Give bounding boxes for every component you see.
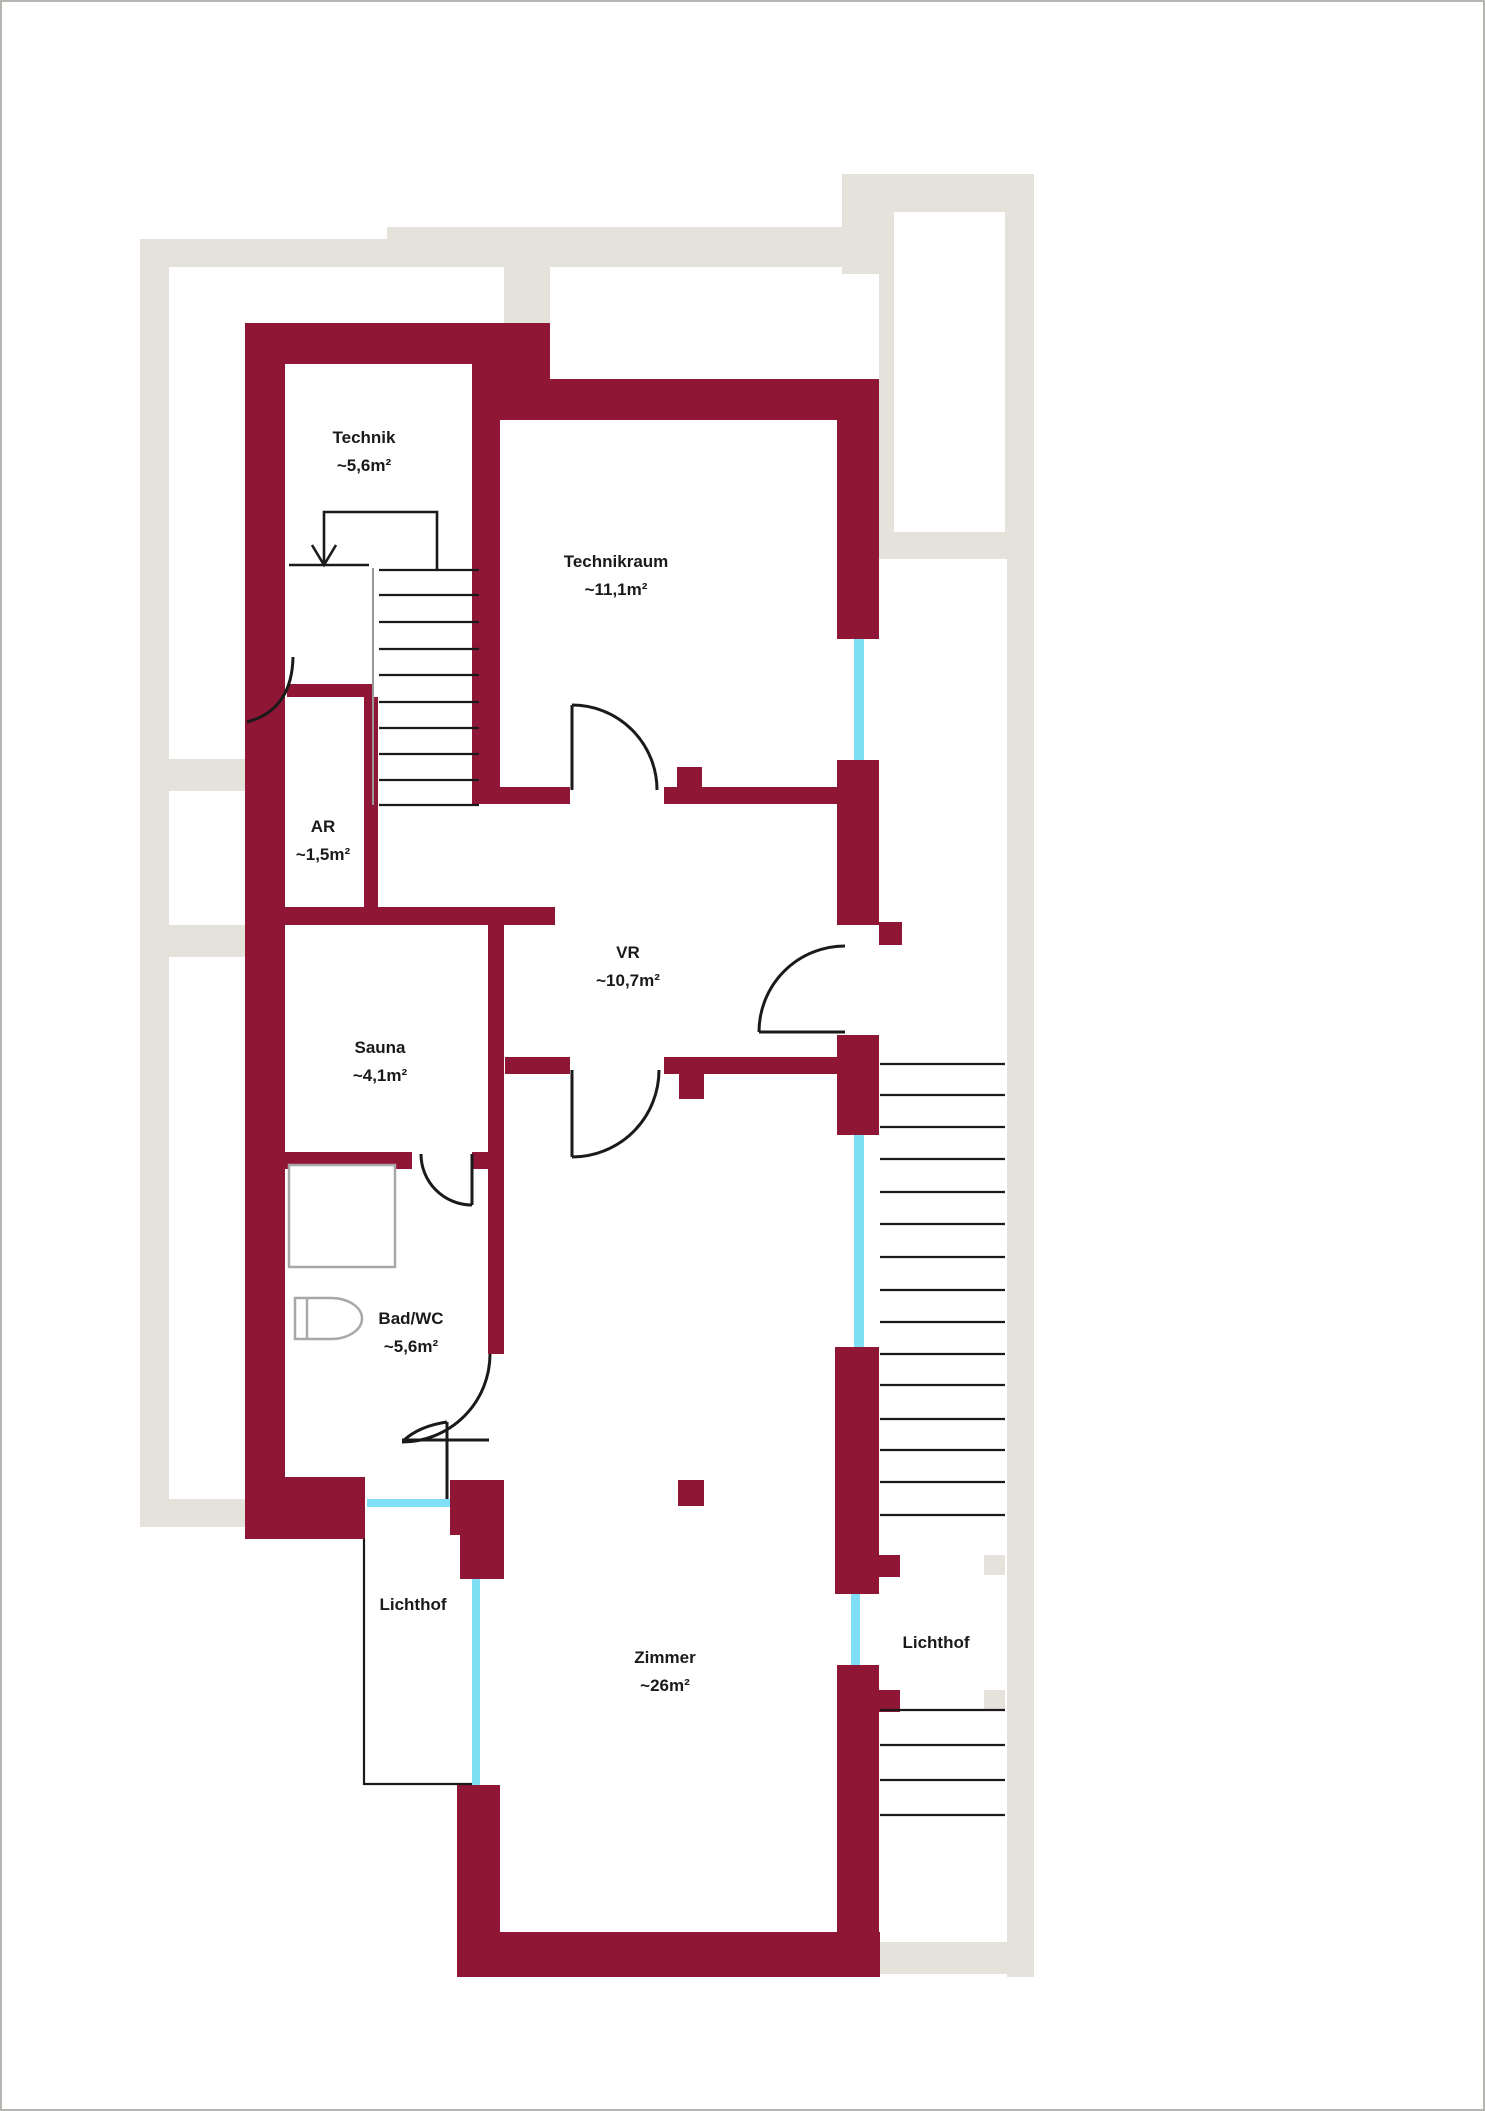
door-sauna	[421, 1154, 472, 1205]
courtyard-name: Lichthof	[902, 1629, 969, 1657]
room-label-zimmer: Zimmer ~26m²	[634, 1644, 695, 1700]
room-name: Technik	[333, 424, 396, 452]
door-lichthof-leaf	[402, 1422, 489, 1499]
doors	[247, 657, 845, 1499]
linework-layer	[2, 2, 1485, 2111]
courtyard-outline	[364, 1539, 472, 1785]
room-label-ar: AR ~1,5m²	[296, 813, 350, 869]
room-name: Sauna	[353, 1034, 407, 1062]
stair-treads	[880, 1064, 1005, 1515]
stair-treads	[379, 570, 479, 805]
room-label-technikraum: Technikraum ~11,1m²	[564, 548, 669, 604]
room-label-sauna: Sauna ~4,1m²	[353, 1034, 407, 1090]
room-area: ~26m²	[634, 1672, 695, 1700]
room-area: ~10,7m²	[596, 967, 660, 995]
room-name: Technikraum	[564, 548, 669, 576]
courtyard-label-right: Lichthof	[902, 1629, 969, 1657]
door-vr-stairs	[759, 946, 845, 1032]
door-vr-technikraum	[572, 705, 657, 790]
toilet-icon	[295, 1298, 362, 1339]
stair-break-outline	[324, 512, 437, 569]
room-label-badwc: Bad/WC ~5,6m²	[378, 1305, 443, 1361]
room-area: ~11,1m²	[564, 576, 669, 604]
staircase-upper	[289, 512, 479, 805]
staircase-right	[880, 1064, 1005, 1815]
room-name: AR	[296, 813, 350, 841]
room-name: VR	[596, 939, 660, 967]
room-area: ~1,5m²	[296, 841, 350, 869]
room-label-vr: VR ~10,7m²	[596, 939, 660, 995]
courtyard-label-left: Lichthof	[379, 1591, 446, 1619]
courtyard-name: Lichthof	[379, 1591, 446, 1619]
shower-icon	[289, 1165, 395, 1267]
room-label-technik: Technik ~5,6m²	[333, 424, 396, 480]
room-area: ~5,6m²	[378, 1333, 443, 1361]
floor-plan: Technik ~5,6m² Technikraum ~11,1m² AR ~1…	[0, 0, 1485, 2111]
room-name: Zimmer	[634, 1644, 695, 1672]
room-name: Bad/WC	[378, 1305, 443, 1333]
stair-treads	[880, 1710, 1005, 1815]
door-ar	[247, 657, 293, 722]
room-area: ~5,6m²	[333, 452, 396, 480]
lichthof-left-outline	[364, 1539, 472, 1785]
door-vr-zimmer	[572, 1070, 659, 1157]
room-area: ~4,1m²	[353, 1062, 407, 1090]
